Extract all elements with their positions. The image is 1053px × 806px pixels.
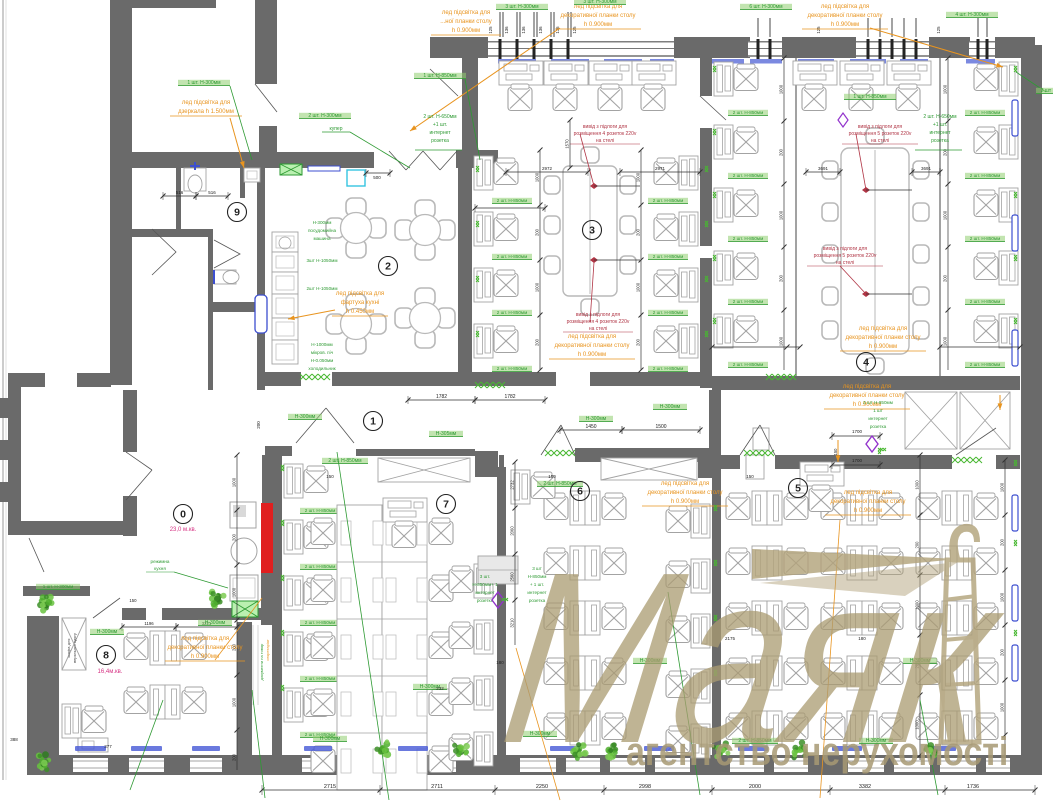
svg-text:150: 150	[548, 474, 556, 479]
svg-text:1 шт. Н-850мм: 1 шт. Н-850мм	[423, 73, 457, 79]
svg-text:h 0.900мм: h 0.900мм	[578, 352, 606, 358]
svg-text:h 0.900мм: h 0.900мм	[452, 28, 480, 34]
svg-text:7: 7	[443, 499, 449, 511]
svg-text:лед підсвітка для: лед підсвітка для	[821, 4, 869, 10]
svg-text:1000: 1000	[943, 210, 948, 220]
svg-text:2 шт: 2 шт	[1041, 88, 1052, 94]
svg-text:200: 200	[943, 274, 948, 282]
svg-text:1500: 1500	[655, 424, 666, 430]
svg-text:вивід з підлоги для: вивід з підлоги для	[576, 312, 621, 318]
svg-text:3691: 3691	[921, 166, 932, 171]
svg-text:150: 150	[833, 448, 838, 456]
svg-text:лед підсвітка для: лед підсвітка для	[661, 481, 709, 487]
svg-text:...ної планки столу: ...ної планки столу	[440, 19, 491, 25]
svg-text:мікров. піч: мікров. піч	[311, 350, 334, 355]
svg-text:Н-300мм: Н-300мм	[660, 404, 681, 410]
svg-text:2060: 2060	[510, 526, 515, 536]
svg-text:9: 9	[234, 207, 240, 219]
svg-text:h 0.900мм: h 0.900мм	[869, 344, 897, 350]
svg-text:2 шт. Н-850мм: 2 шт. Н-850мм	[733, 173, 764, 178]
svg-text:2972: 2972	[542, 166, 553, 171]
svg-text:2971: 2971	[655, 166, 666, 171]
svg-text:Н-0.050мм: Н-0.050мм	[311, 358, 334, 363]
svg-text:2 шт. Н-850мм: 2 шт. Н-850мм	[653, 310, 684, 315]
svg-text:секретаріат: секретаріат	[265, 639, 270, 661]
svg-text:2 шт. Н-850мм: 2 шт. Н-850мм	[733, 236, 764, 241]
svg-text:Н-300мм: Н-300мм	[313, 220, 332, 225]
svg-text:2 шт. Н-850мм: 2 шт. Н-850мм	[497, 366, 528, 371]
svg-text:машина: машина	[313, 236, 331, 241]
svg-text:купер: купер	[329, 126, 342, 132]
svg-text:2шт Н-1050мм: 2шт Н-1050мм	[306, 286, 337, 291]
svg-text:1000: 1000	[779, 210, 784, 220]
svg-text:200: 200	[1000, 648, 1005, 656]
svg-text:декоративної планки столу: декоративної планки столу	[829, 393, 904, 399]
svg-text:2715: 2715	[324, 784, 336, 790]
svg-text:на стелі: на стелі	[596, 138, 614, 144]
svg-text:1570: 1570	[565, 139, 570, 149]
svg-text:h 0.900мм: h 0.900мм	[191, 654, 219, 660]
svg-text:шафа для: шафа для	[66, 639, 71, 658]
svg-text:2 шт. Н-850мм: 2 шт. Н-850мм	[305, 564, 336, 569]
svg-text:холодильник: холодильник	[308, 366, 336, 371]
svg-text:h 0.900мм: h 0.900мм	[584, 22, 612, 28]
svg-text:Н-850мм+ 1: Н-850мм+ 1	[472, 582, 498, 587]
svg-text:вивід з підлоги для: вивід з підлоги для	[858, 124, 903, 130]
svg-text:2560: 2560	[510, 572, 515, 582]
svg-text:на стелі: на стелі	[589, 326, 607, 332]
svg-text:200: 200	[636, 338, 641, 346]
svg-text:150: 150	[746, 474, 754, 479]
svg-text:125: 125	[936, 26, 941, 34]
svg-text:2 шт. Н-850мм: 2 шт. Н-850мм	[970, 173, 1001, 178]
svg-text:1450: 1450	[585, 424, 596, 430]
svg-text:1 шт. Н-300мм: 1 шт. Н-300мм	[43, 584, 74, 589]
svg-text:h 0.900мм: h 0.900мм	[671, 499, 699, 505]
svg-text:фартуха кухні: фартуха кухні	[341, 300, 380, 306]
svg-text:1000: 1000	[232, 697, 237, 707]
svg-text:1: 1	[370, 416, 376, 428]
svg-text:516: 516	[208, 190, 216, 195]
svg-text:16,4м.кв.: 16,4м.кв.	[98, 669, 123, 675]
svg-text:150: 150	[326, 474, 334, 479]
svg-text:200: 200	[636, 228, 641, 236]
svg-text:6: 6	[577, 486, 583, 498]
svg-text:200: 200	[232, 753, 237, 761]
svg-text:2 шт. Н-850мм: 2 шт. Н-850мм	[653, 254, 684, 259]
svg-text:200: 200	[535, 338, 540, 346]
svg-text:1000: 1000	[232, 477, 237, 487]
svg-text:2 шт. Н-850мм: 2 шт. Н-850мм	[497, 198, 528, 203]
svg-text:лед підсвітка для: лед підсвітка для	[336, 291, 384, 297]
svg-text:1 шт: 1 шт	[873, 408, 884, 413]
svg-text:Н-300мм: Н-300мм	[97, 629, 118, 635]
svg-text:Н-305мм: Н-305мм	[436, 431, 457, 437]
svg-text:136: 136	[504, 26, 509, 34]
svg-text:1000: 1000	[535, 282, 540, 292]
svg-text:125: 125	[816, 26, 821, 34]
svg-text:125: 125	[488, 26, 493, 34]
svg-text:розміщення 4 розеток 220v: розміщення 4 розеток 220v	[574, 131, 637, 137]
svg-text:1196: 1196	[144, 621, 154, 626]
svg-text:1000: 1000	[779, 84, 784, 94]
svg-text:декоративної планки столу: декоративної планки столу	[647, 490, 722, 496]
svg-text:h 0.900мм: h 0.900мм	[854, 508, 882, 514]
svg-text:1000: 1000	[943, 336, 948, 346]
svg-text:вивід з підлоги для: вивід з підлоги для	[583, 124, 628, 130]
svg-text:лед підсвітка для: лед підсвітка для	[442, 10, 490, 16]
svg-text:декоративної планки столу: декоративної планки столу	[554, 343, 629, 349]
svg-text:1700: 1700	[852, 458, 863, 463]
svg-text:200: 200	[256, 421, 261, 429]
svg-text:декоративної планки столу: декоративної планки столу	[560, 13, 635, 19]
svg-text:125: 125	[572, 26, 577, 34]
svg-text:3: 3	[589, 225, 595, 237]
svg-text:2 шт. Н-850мм: 2 шт. Н-850мм	[733, 110, 764, 115]
svg-text:1000: 1000	[232, 587, 237, 597]
svg-text:1000: 1000	[779, 336, 784, 346]
svg-text:розміщення 4 розеток 220v: розміщення 4 розеток 220v	[567, 319, 630, 325]
svg-text:5: 5	[795, 483, 801, 495]
svg-text:розетка: розетка	[431, 138, 449, 144]
svg-text:лед підсвітка для: лед підсвітка для	[843, 384, 891, 390]
svg-text:180: 180	[496, 660, 504, 665]
svg-text:4: 4	[863, 357, 869, 369]
svg-text:розетка: розетка	[931, 138, 949, 144]
svg-text:1000: 1000	[636, 172, 641, 182]
svg-text:на стелі: на стелі	[836, 260, 854, 266]
svg-text:1782: 1782	[504, 394, 515, 400]
svg-text:посудомийна: посудомийна	[308, 227, 337, 233]
svg-text:2 шт. Н-850мм: 2 шт. Н-850мм	[970, 362, 1001, 367]
svg-text:0: 0	[180, 509, 186, 521]
svg-text:2 шт. Н-650мм: 2 шт. Н-650мм	[423, 114, 457, 120]
svg-text:лед підсвітка для: лед підсвітка для	[182, 100, 230, 106]
svg-text:2 шт. Н-850мм: 2 шт. Н-850мм	[970, 299, 1001, 304]
svg-text:3 шт.: 3 шт.	[480, 574, 491, 579]
svg-text:200: 200	[943, 148, 948, 156]
svg-text:6 шт. Н-300мм: 6 шт. Н-300мм	[749, 4, 783, 10]
svg-text:режимна: режимна	[151, 559, 170, 564]
svg-text:декоративної планки столу: декоративної планки столу	[807, 13, 882, 19]
svg-text:лед підсвітка для: лед підсвітка для	[859, 326, 907, 332]
svg-text:лед підсвітка для: лед підсвітка для	[568, 334, 616, 340]
svg-text:2 шт. Н-850мм: 2 шт. Н-850мм	[497, 310, 528, 315]
svg-text:232: 232	[436, 686, 444, 691]
svg-text:200: 200	[232, 533, 237, 541]
svg-text:1782: 1782	[436, 394, 447, 400]
svg-text:23,0 м.кв.: 23,0 м.кв.	[170, 527, 197, 533]
svg-text:3691: 3691	[818, 166, 829, 171]
svg-text:документи на товар: документи на товар	[259, 643, 264, 681]
svg-text:декоративної планки столу: декоративної планки столу	[830, 499, 905, 505]
svg-text:вивід з підлоги для: вивід з підлоги для	[823, 246, 868, 252]
svg-text:2 шт. Н-850мм: 2 шт. Н-850мм	[305, 508, 336, 513]
svg-text:розміщення 5 розеток 220v: розміщення 5 розеток 220v	[849, 131, 912, 137]
svg-text:Н-300мм: Н-300мм	[295, 414, 316, 420]
svg-text:2 шт. Н-850мм: 2 шт. Н-850мм	[305, 620, 336, 625]
svg-text:интернет: интернет	[929, 130, 951, 136]
svg-text:2: 2	[385, 261, 391, 273]
svg-text:1000: 1000	[1000, 482, 1005, 492]
svg-text:+1 шт.: +1 шт.	[933, 122, 947, 128]
svg-text:136: 136	[521, 26, 526, 34]
svg-text:Н-300мм: Н-300мм	[205, 620, 226, 626]
svg-text:1000: 1000	[535, 172, 540, 182]
svg-text:дзеркала h 1.500мм: дзеркала h 1.500мм	[178, 109, 234, 115]
svg-text:2732: 2732	[510, 480, 515, 490]
svg-text:на стелі: на стелі	[871, 138, 889, 144]
svg-text:136: 136	[538, 26, 543, 34]
svg-text:200: 200	[779, 274, 784, 282]
svg-text:8: 8	[103, 650, 109, 662]
svg-text:2711: 2711	[431, 784, 443, 790]
svg-text:кухня: кухня	[154, 566, 166, 571]
svg-text:2 шт. Н-850мм: 2 шт. Н-850мм	[733, 362, 764, 367]
svg-text:150: 150	[129, 598, 137, 603]
svg-text:2 шт. Н-850мм: 2 шт. Н-850мм	[653, 366, 684, 371]
svg-text:2 шт. Н-650мм: 2 шт. Н-650мм	[923, 114, 957, 120]
svg-text:2 шт. Н-850мм: 2 шт. Н-850мм	[497, 254, 528, 259]
svg-text:h 0.450мм: h 0.450мм	[346, 309, 374, 315]
svg-text:Н-300мм: Н-300мм	[586, 416, 607, 422]
svg-text:4 шт. Н-300мм: 4 шт. Н-300мм	[955, 12, 989, 18]
svg-text:розетка: розетка	[477, 598, 494, 603]
svg-text:1 шт. Н-850мм: 1 шт. Н-850мм	[853, 94, 887, 100]
svg-text:агентство нерухомості: агентство нерухомості	[626, 728, 1008, 773]
svg-text:1000: 1000	[636, 282, 641, 292]
svg-text:2 шт. Н-850мм: 2 шт. Н-850мм	[328, 458, 362, 464]
svg-text:декоративної планки столу: декоративної планки столу	[167, 645, 242, 651]
svg-text:розетка: розетка	[870, 424, 887, 429]
svg-text:Н-1000мм: Н-1000мм	[311, 342, 332, 347]
svg-text:2 шт. Н-850мм: 2 шт. Н-850мм	[305, 676, 336, 681]
svg-text:3шт Н-1050мм: 3шт Н-1050мм	[306, 258, 337, 263]
svg-text:516: 516	[176, 190, 184, 195]
svg-text:388: 388	[10, 737, 18, 742]
svg-text:3 шт Н-850мм: 3 шт Н-850мм	[863, 400, 893, 405]
svg-text:розміщення 5 розеток 220v: розміщення 5 розеток 220v	[814, 253, 877, 259]
svg-text:1700: 1700	[852, 429, 863, 434]
svg-text:декоративної планки столу: декоративної планки столу	[845, 335, 920, 341]
svg-text:интернет: интернет	[429, 130, 451, 136]
svg-text:377: 377	[104, 744, 112, 749]
svg-text:2 шт. Н-850мм: 2 шт. Н-850мм	[970, 236, 1001, 241]
svg-text:интернет: интернет	[475, 590, 495, 595]
svg-text:2 шт. Н-850мм: 2 шт. Н-850мм	[733, 299, 764, 304]
svg-text:200: 200	[535, 228, 540, 236]
svg-text:2 шт. Н-850мм: 2 шт. Н-850мм	[970, 110, 1001, 115]
svg-text:1000: 1000	[915, 480, 920, 490]
svg-text:верхнього одягу: верхнього одягу	[72, 633, 77, 663]
svg-text:Н-300мм: Н-300мм	[320, 736, 341, 742]
svg-text:500: 500	[373, 175, 381, 180]
svg-text:+1 шт.: +1 шт.	[433, 122, 447, 128]
svg-text:1000: 1000	[943, 84, 948, 94]
svg-text:2 шт. Н-300мм: 2 шт. Н-300мм	[308, 113, 342, 119]
svg-text:h 0.900мм: h 0.900мм	[831, 22, 859, 28]
svg-text:3 шт. Н-300мм: 3 шт. Н-300мм	[505, 4, 539, 10]
svg-text:1000: 1000	[1000, 702, 1005, 712]
svg-text:интернет: интернет	[868, 416, 888, 421]
svg-text:1 шт. Н-300мм: 1 шт. Н-300мм	[187, 80, 221, 86]
svg-text:лед підсвітка для: лед підсвітка для	[844, 490, 892, 496]
svg-text:200: 200	[779, 148, 784, 156]
svg-text:лед підсвітка для: лед підсвітка для	[181, 636, 229, 642]
svg-text:2 шт. Н-850мм: 2 шт. Н-850мм	[653, 198, 684, 203]
